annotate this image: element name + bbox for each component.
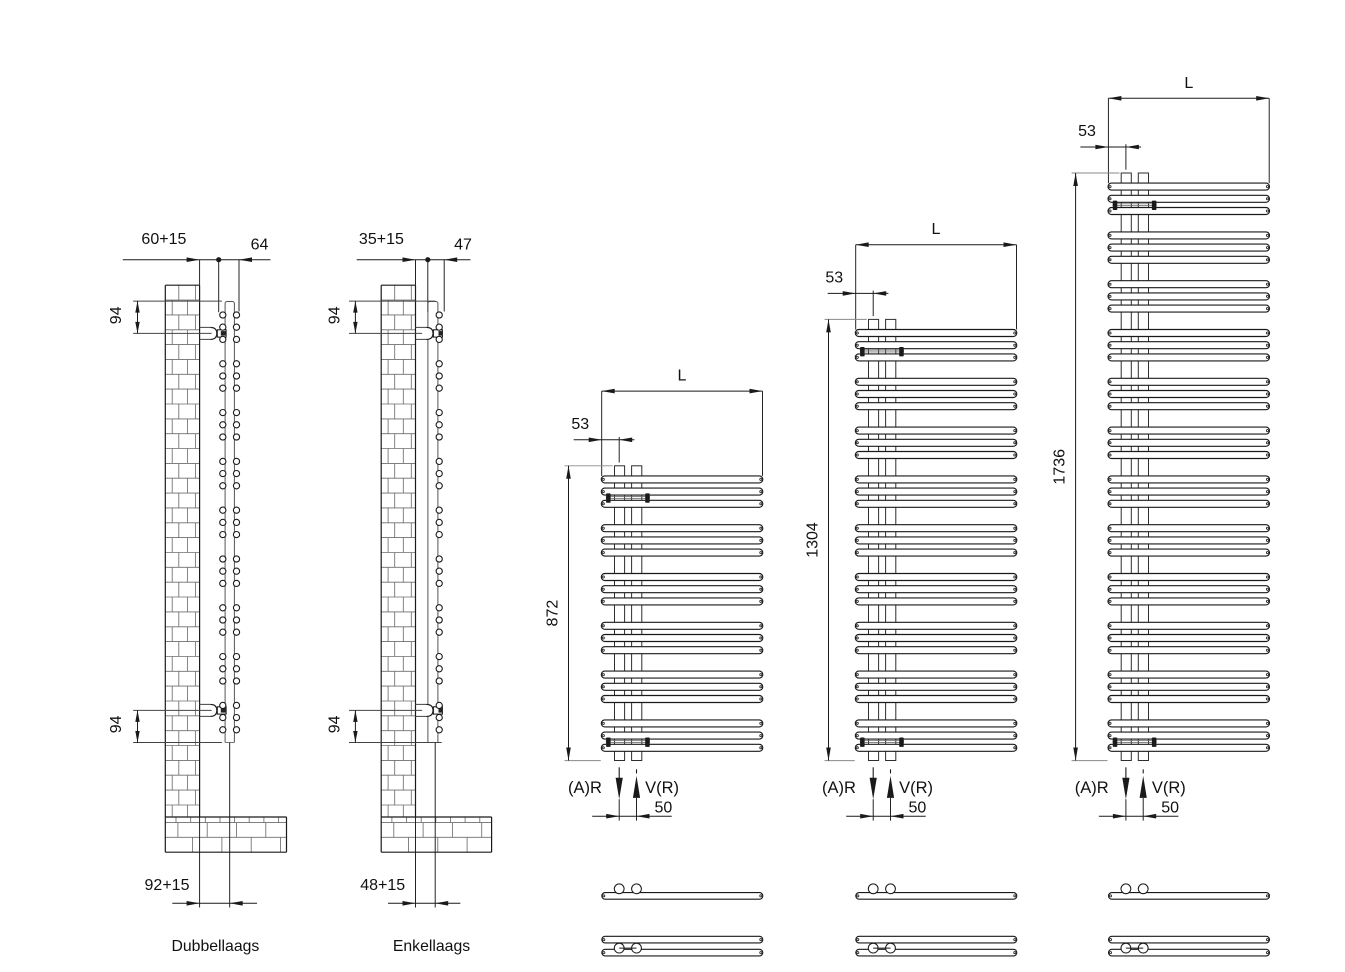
svg-text:48+15: 48+15 [360, 877, 405, 894]
svg-text:(A)R: (A)R [822, 779, 856, 797]
svg-text:1736: 1736 [1052, 449, 1069, 485]
svg-text:92+15: 92+15 [145, 877, 190, 894]
svg-text:(A)R: (A)R [568, 779, 602, 797]
svg-text:47: 47 [454, 237, 472, 254]
svg-text:L: L [678, 368, 687, 385]
svg-text:(A)R: (A)R [1075, 779, 1109, 797]
svg-text:94: 94 [327, 715, 344, 733]
svg-text:53: 53 [1078, 123, 1096, 140]
svg-text:872: 872 [545, 600, 562, 627]
svg-text:1304: 1304 [805, 522, 822, 558]
svg-text:60+15: 60+15 [141, 231, 186, 248]
svg-text:V(R): V(R) [1152, 779, 1186, 797]
svg-text:94: 94 [108, 306, 125, 324]
svg-text:53: 53 [571, 416, 589, 433]
svg-text:50: 50 [655, 800, 673, 817]
svg-text:64: 64 [251, 237, 269, 254]
svg-text:V(R): V(R) [899, 779, 933, 797]
svg-text:94: 94 [108, 715, 125, 733]
svg-text:50: 50 [909, 800, 927, 817]
svg-text:94: 94 [327, 306, 344, 324]
svg-text:53: 53 [825, 270, 843, 287]
svg-text:L: L [1184, 75, 1193, 92]
svg-text:L: L [932, 221, 941, 238]
svg-text:35+15: 35+15 [359, 231, 404, 248]
svg-text:50: 50 [1161, 800, 1179, 817]
svg-text:V(R): V(R) [645, 779, 679, 797]
svg-text:Dubbellaags: Dubbellaags [171, 938, 259, 955]
svg-text:Enkellaags: Enkellaags [393, 938, 470, 955]
